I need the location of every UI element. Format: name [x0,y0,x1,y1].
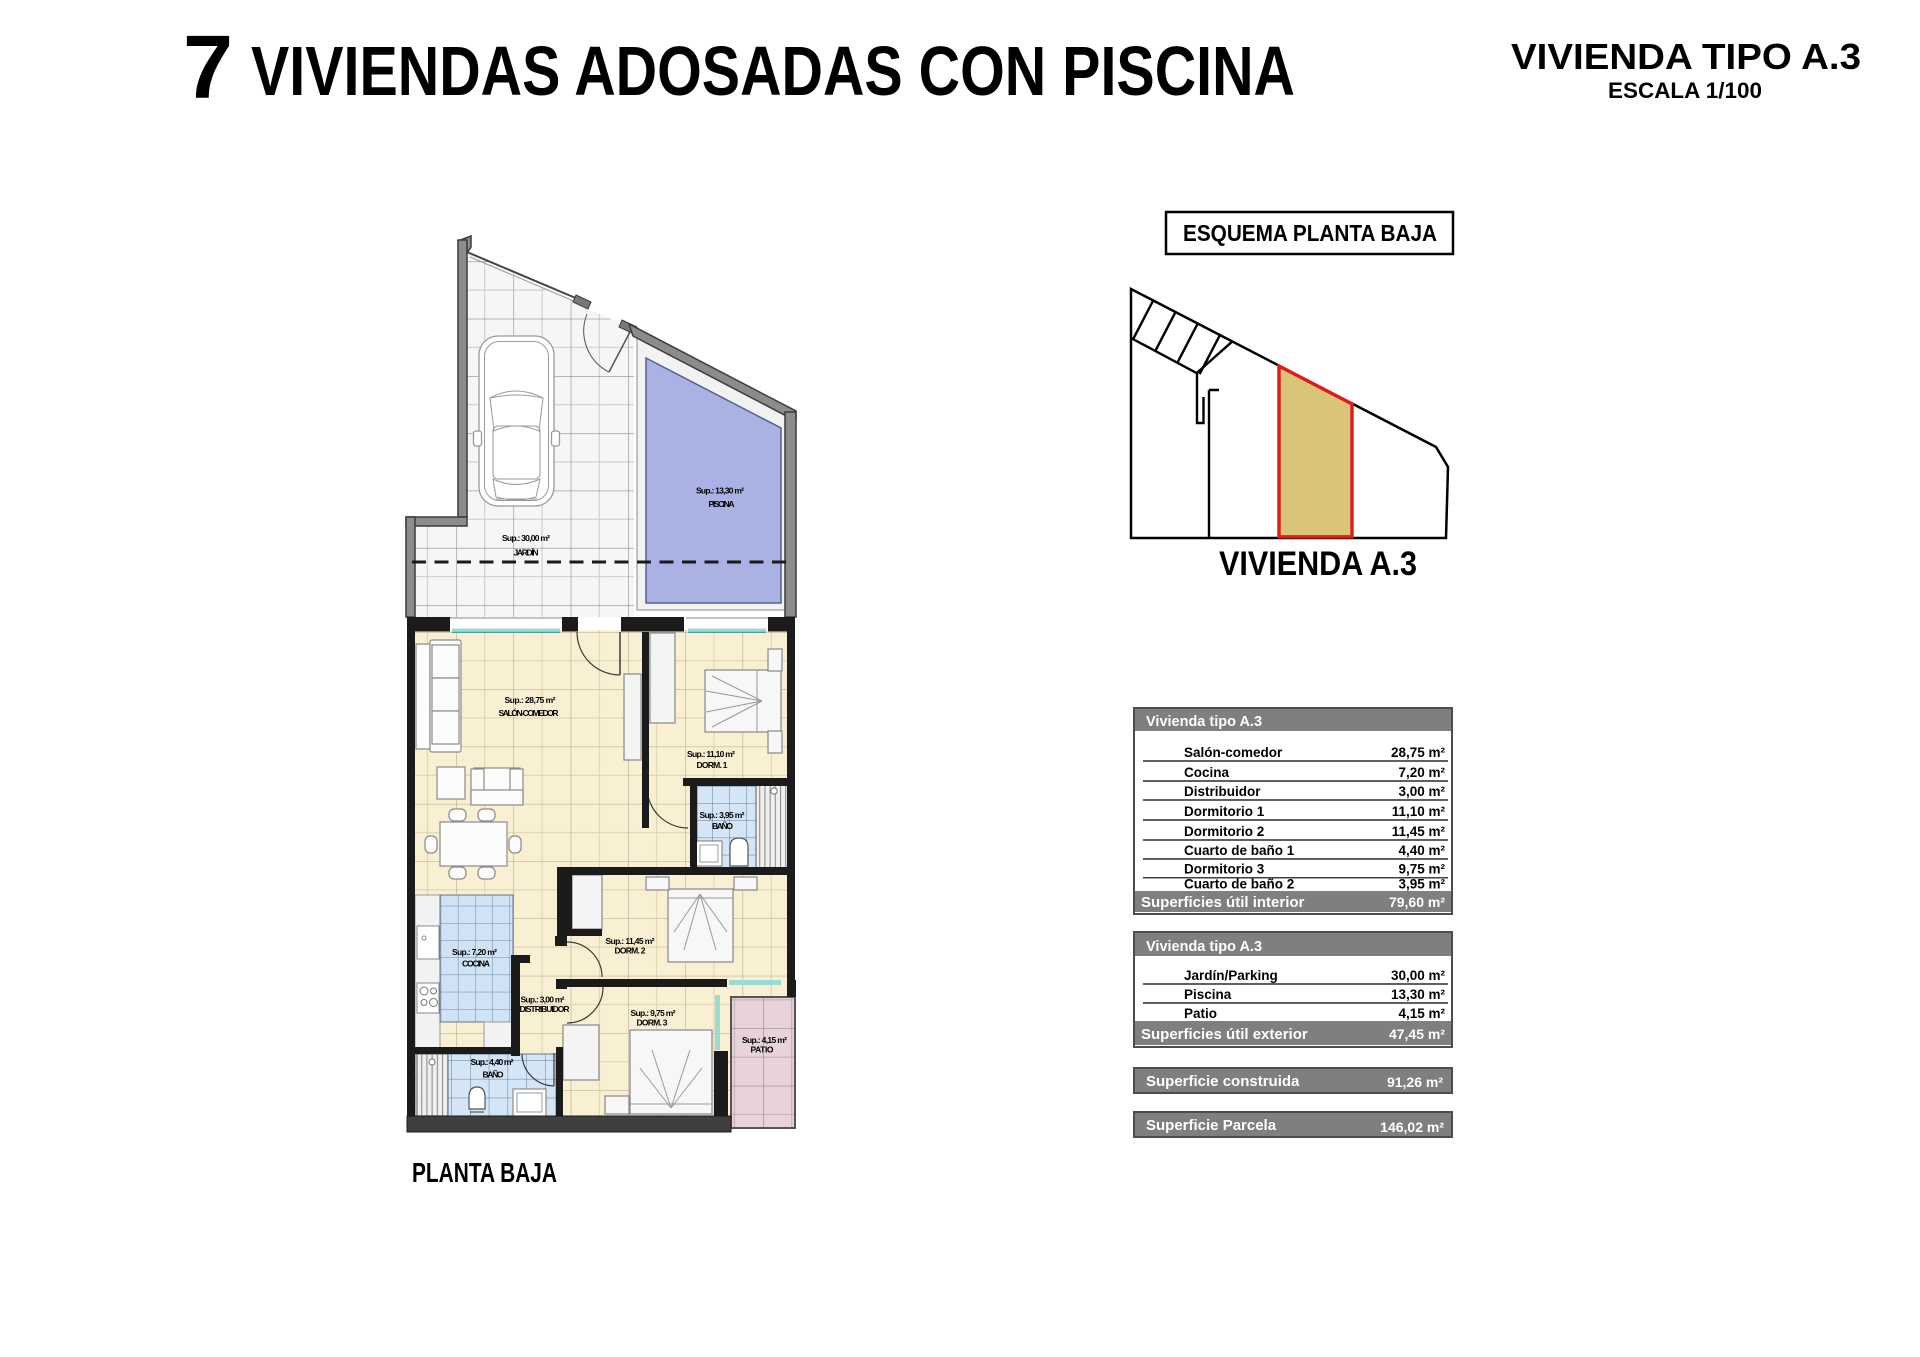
svg-text:11,45 m²: 11,45 m² [1392,824,1446,839]
svg-text:13,30 m²: 13,30 m² [1391,987,1446,1002]
svg-text:Patio: Patio [1184,1006,1217,1021]
svg-text:4,40 m²: 4,40 m² [1398,843,1445,858]
svg-text:Dormitorio 3: Dormitorio 3 [1184,862,1265,877]
svg-text:3,95 m²: 3,95 m² [1398,877,1445,892]
svg-text:79,60 m²: 79,60 m² [1389,894,1445,910]
svg-text:146,02 m²: 146,02 m² [1380,1119,1444,1135]
svg-text:3,00 m²: 3,00 m² [1398,784,1445,799]
svg-text:Sup.: 28,75 m²: Sup.: 28,75 m² [505,695,556,705]
svg-text:11,10 m²: 11,10 m² [1392,804,1446,819]
svg-text:SALÓN-COMEDOR: SALÓN-COMEDOR [499,707,559,718]
svg-text:28,75 m²: 28,75 m² [1391,745,1446,760]
svg-text:PATIO: PATIO [751,1045,774,1055]
svg-text:Sup.: 30,00 m²: Sup.: 30,00 m² [502,533,550,543]
svg-text:Sup.: 4,40 m²: Sup.: 4,40 m² [471,1057,514,1067]
svg-text:Jardín/Parking: Jardín/Parking [1184,968,1278,983]
svg-text:Superficies útil interior: Superficies útil interior [1141,894,1305,911]
svg-text:Vivienda tipo A.3: Vivienda tipo A.3 [1146,939,1262,955]
svg-text:Cuarto de baño 1: Cuarto de baño 1 [1184,843,1295,858]
svg-text:PLANTA BAJA: PLANTA BAJA [412,1157,557,1188]
svg-text:Sup.: 11,10 m²: Sup.: 11,10 m² [687,749,735,759]
svg-text:7,20 m²: 7,20 m² [1398,765,1445,780]
svg-text:ESCALA 1/100: ESCALA 1/100 [1608,78,1762,103]
svg-text:JARDÍN: JARDÍN [514,548,539,558]
svg-text:Dormitorio 1: Dormitorio 1 [1184,804,1265,819]
svg-text:4,15 m²: 4,15 m² [1398,1006,1445,1021]
svg-text:Sup.: 3,00 m²: Sup.: 3,00 m² [521,995,565,1005]
svg-text:COCINA: COCINA [462,959,490,969]
svg-text:BAÑO: BAÑO [483,1070,504,1080]
svg-text:Piscina: Piscina [1184,987,1232,1002]
svg-text:VIVIENDAS ADOSADAS CON PISCINA: VIVIENDAS ADOSADAS CON PISCINA [251,32,1295,110]
svg-text:Vivienda tipo A.3: Vivienda tipo A.3 [1146,714,1262,730]
svg-text:DORM. 2: DORM. 2 [615,946,646,956]
svg-text:Sup.: 3,95 m²: Sup.: 3,95 m² [700,810,745,820]
svg-text:30,00 m²: 30,00 m² [1391,968,1446,983]
svg-text:9,75 m²: 9,75 m² [1398,862,1445,877]
svg-text:Superficie Parcela: Superficie Parcela [1146,1117,1277,1134]
svg-text:Dormitorio 2: Dormitorio 2 [1184,824,1264,839]
svg-text:Sup.: 9,75 m²: Sup.: 9,75 m² [631,1008,676,1018]
svg-text:Cuarto de baño 2: Cuarto de baño 2 [1184,877,1294,892]
svg-text:PISCINA: PISCINA [709,499,735,509]
svg-text:Sup.: 7,20 m²: Sup.: 7,20 m² [452,947,497,957]
svg-text:Distribuidor: Distribuidor [1184,784,1261,799]
svg-text:VIVIENDA A.3: VIVIENDA A.3 [1219,545,1417,583]
svg-text:ESQUEMA PLANTA BAJA: ESQUEMA PLANTA BAJA [1183,220,1437,246]
svg-text:DORM. 1: DORM. 1 [697,760,728,770]
svg-text:Salón-comedor: Salón-comedor [1184,745,1283,760]
svg-text:Superficie construida: Superficie construida [1146,1073,1300,1090]
svg-text:Sup.: 11,45 m²: Sup.: 11,45 m² [606,936,655,946]
svg-text:DORM. 3: DORM. 3 [637,1018,668,1028]
svg-text:BAÑO: BAÑO [712,821,733,831]
svg-text:DISTRIBUIDOR: DISTRIBUIDOR [520,1004,570,1014]
svg-text:91,26 m²: 91,26 m² [1387,1074,1443,1090]
svg-text:Superficies útil exterior: Superficies útil exterior [1141,1026,1308,1043]
svg-text:47,45 m²: 47,45 m² [1389,1026,1445,1042]
svg-text:Sup.: 13,30 m²: Sup.: 13,30 m² [696,486,744,496]
svg-text:Cocina: Cocina [1184,765,1230,780]
svg-text:Sup.: 4,15 m²: Sup.: 4,15 m² [742,1035,787,1045]
svg-text:7: 7 [183,18,233,118]
svg-text:VIVIENDA TIPO A.3: VIVIENDA TIPO A.3 [1511,36,1861,77]
